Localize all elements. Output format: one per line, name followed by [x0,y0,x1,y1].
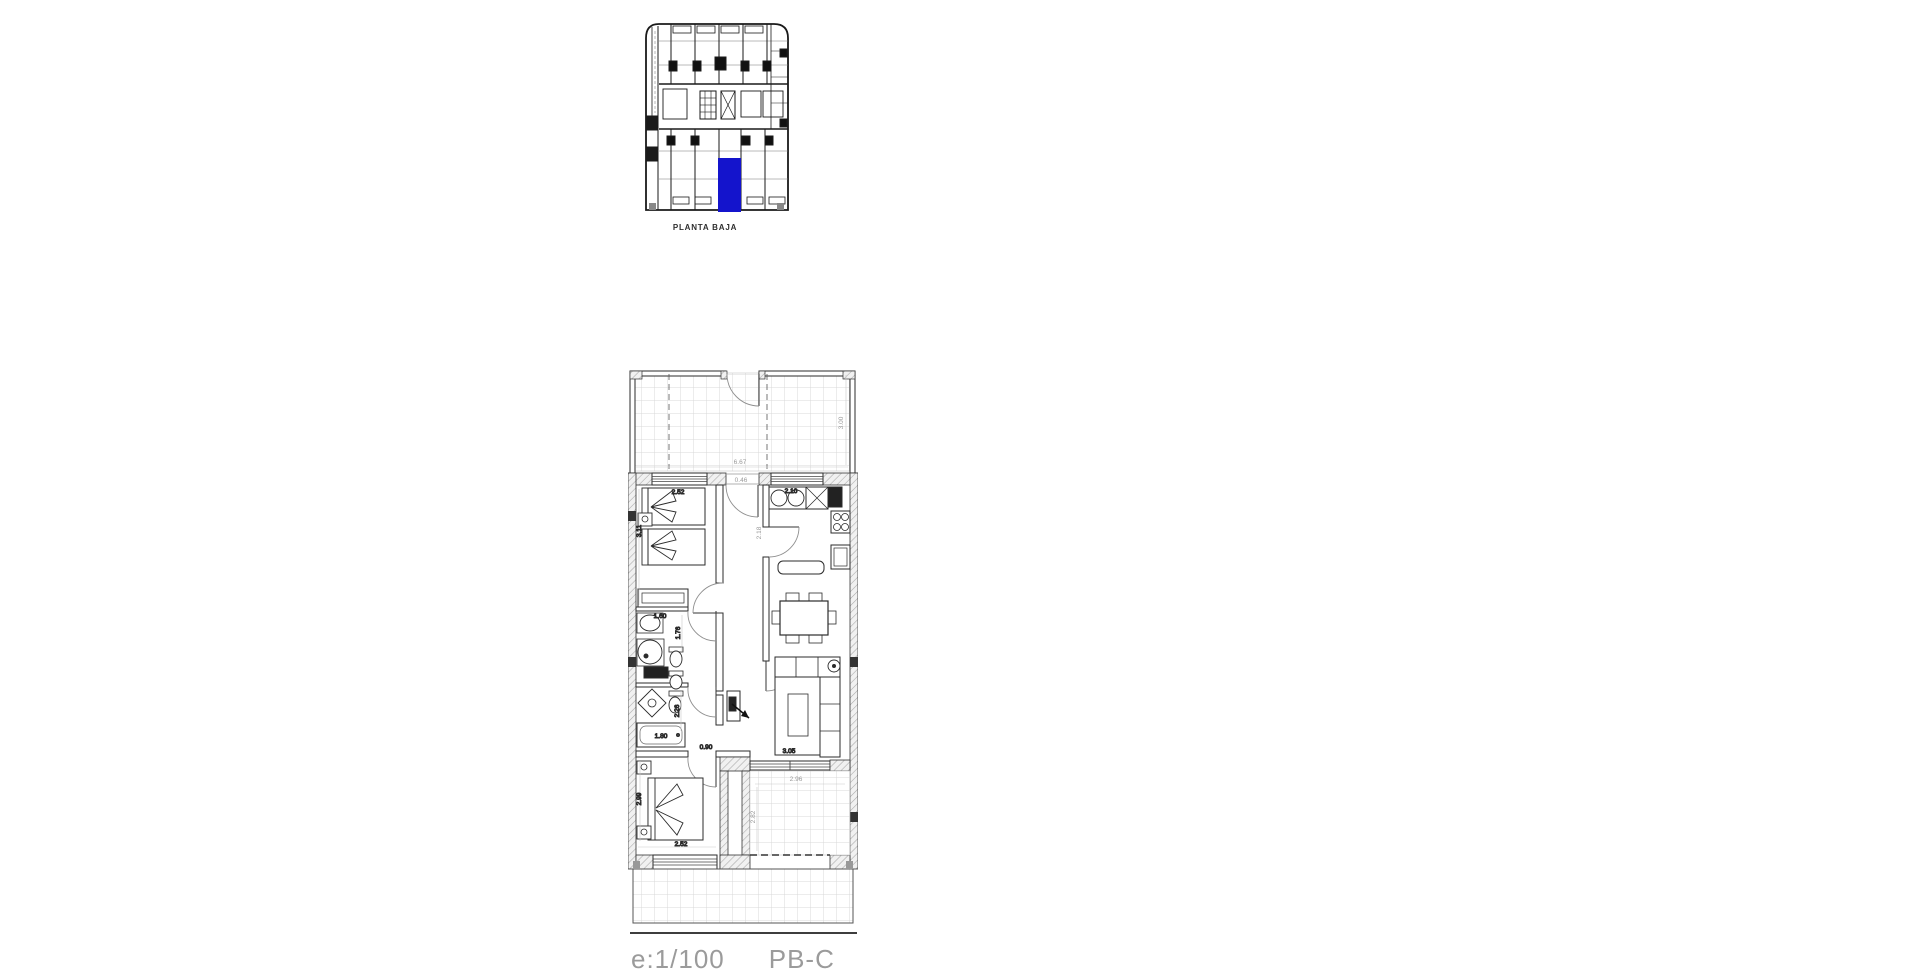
dimension-label: 2.82 [750,810,757,823]
dimension-label: 3.11 [636,525,643,538]
terrace-top: 6.67 3.00 [630,371,855,473]
bathroom-1: 1.60 1.76 [637,613,683,689]
dimension-label: 2.52 [672,489,685,496]
page-canvas: PLANTA BAJA [0,0,1920,980]
overview-core [647,89,788,161]
dimension-label: 2.10 [785,488,798,495]
building-overview-svg [643,21,790,213]
scale-label: e:1/100 [631,944,725,975]
dimension-label: 3.05 [783,748,796,755]
apartment-floor-plan: 6.67 3.00 [628,361,858,926]
patio: 2.96 2.82 [750,771,850,855]
overview-caption: PLANTA BAJA [633,223,777,232]
dimension-label: 2.18 [756,526,763,539]
bathroom-2: 2.26 1.80 [637,689,685,747]
dimension-label: 2.52 [675,841,688,848]
dimension-label: 2.26 [674,704,681,717]
dimension-label: 0.90 [700,744,713,751]
dimension-label: 1.76 [675,626,682,639]
dimension-label: 2.96 [790,776,803,783]
overview-top-units [659,24,788,84]
dimension-label: 3.00 [838,416,845,429]
kitchen: 2.10 [769,487,850,574]
dimension-label: 6.67 [734,459,747,466]
highlighted-unit[interactable] [718,158,741,212]
apartment-floor-plan-svg: 6.67 3.00 [628,361,858,926]
dimension-label: 0.46 [735,477,748,484]
bedroom-1: 2.52 3.11 [636,488,705,607]
building-overview-plan [643,21,790,213]
bedroom-2: 2.52 2.99 [636,761,716,848]
dimension-label: 1.80 [655,733,668,740]
terrace-bottom [633,861,853,923]
footer-divider-line [630,932,857,934]
unit-label: PB-C [769,944,835,975]
dimension-label: 2.99 [636,792,643,805]
footer-labels: e:1/100 PB-C [631,944,835,975]
dimension-label: 1.60 [654,613,667,620]
